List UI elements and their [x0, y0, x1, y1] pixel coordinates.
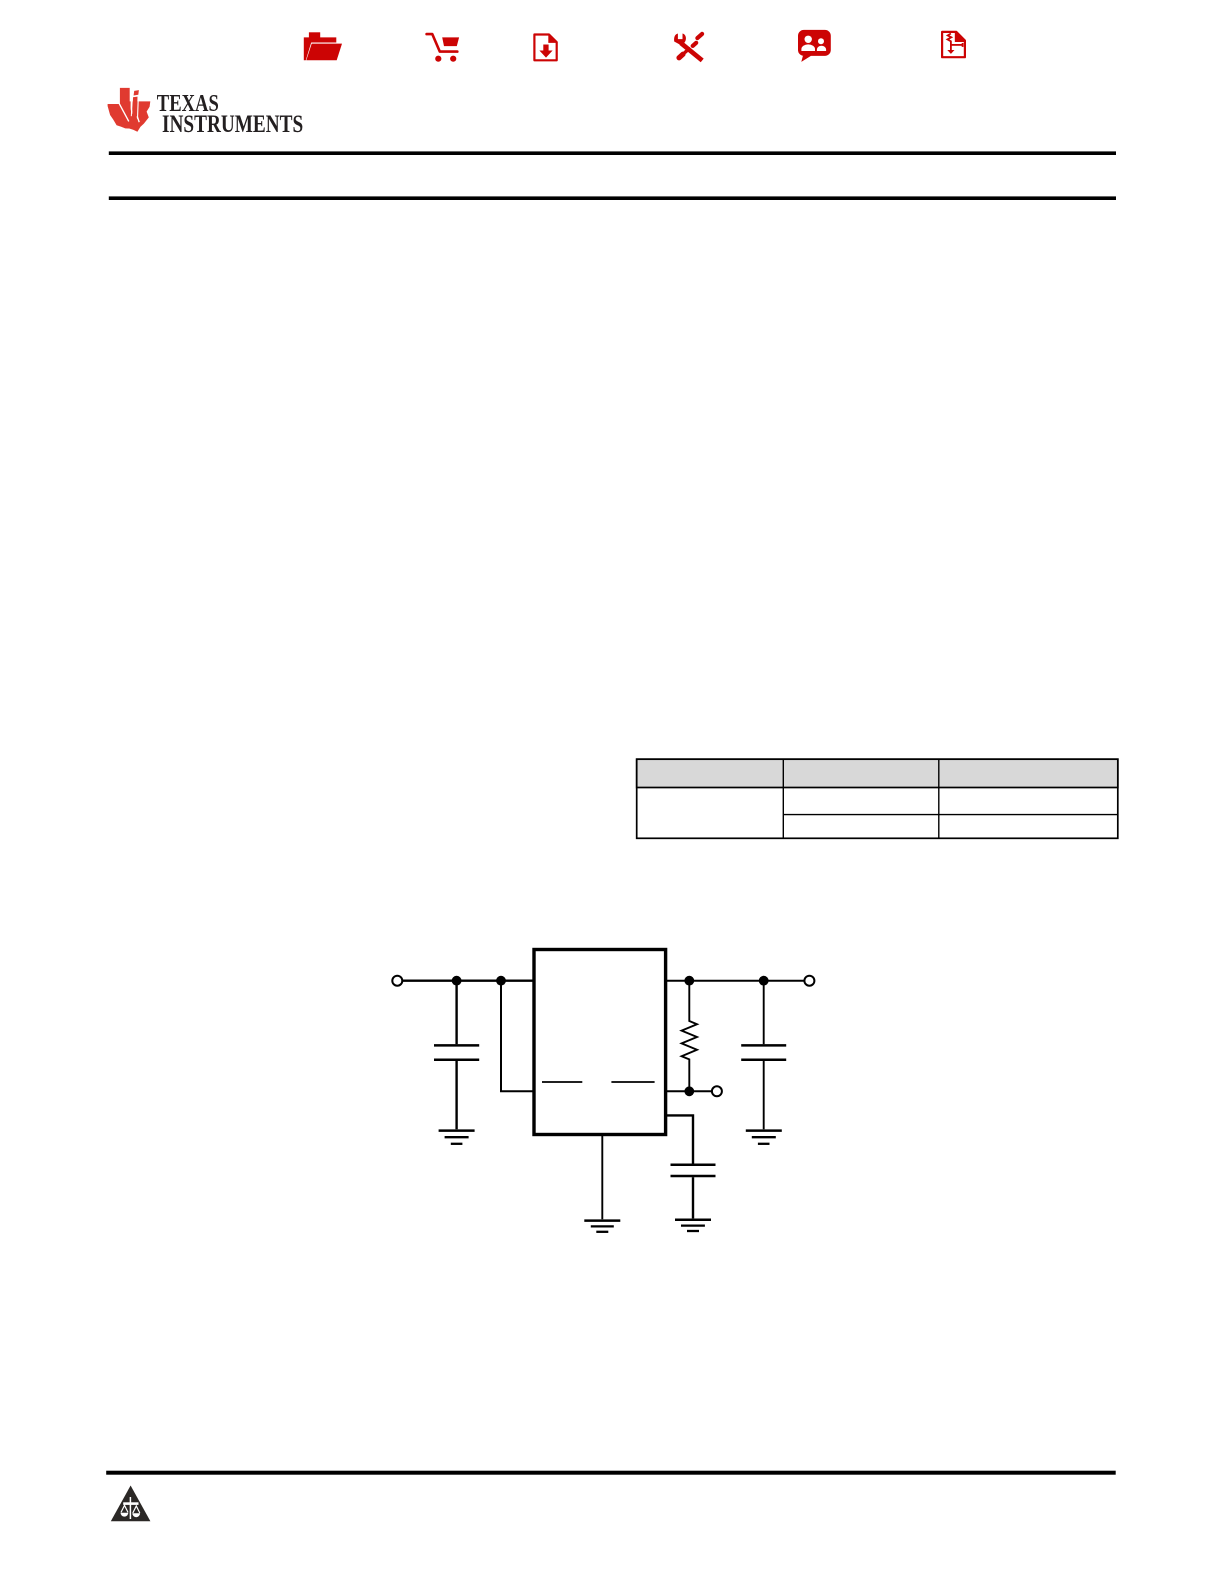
svg-text:INSTRUMENTS: INSTRUMENTS: [162, 111, 303, 138]
